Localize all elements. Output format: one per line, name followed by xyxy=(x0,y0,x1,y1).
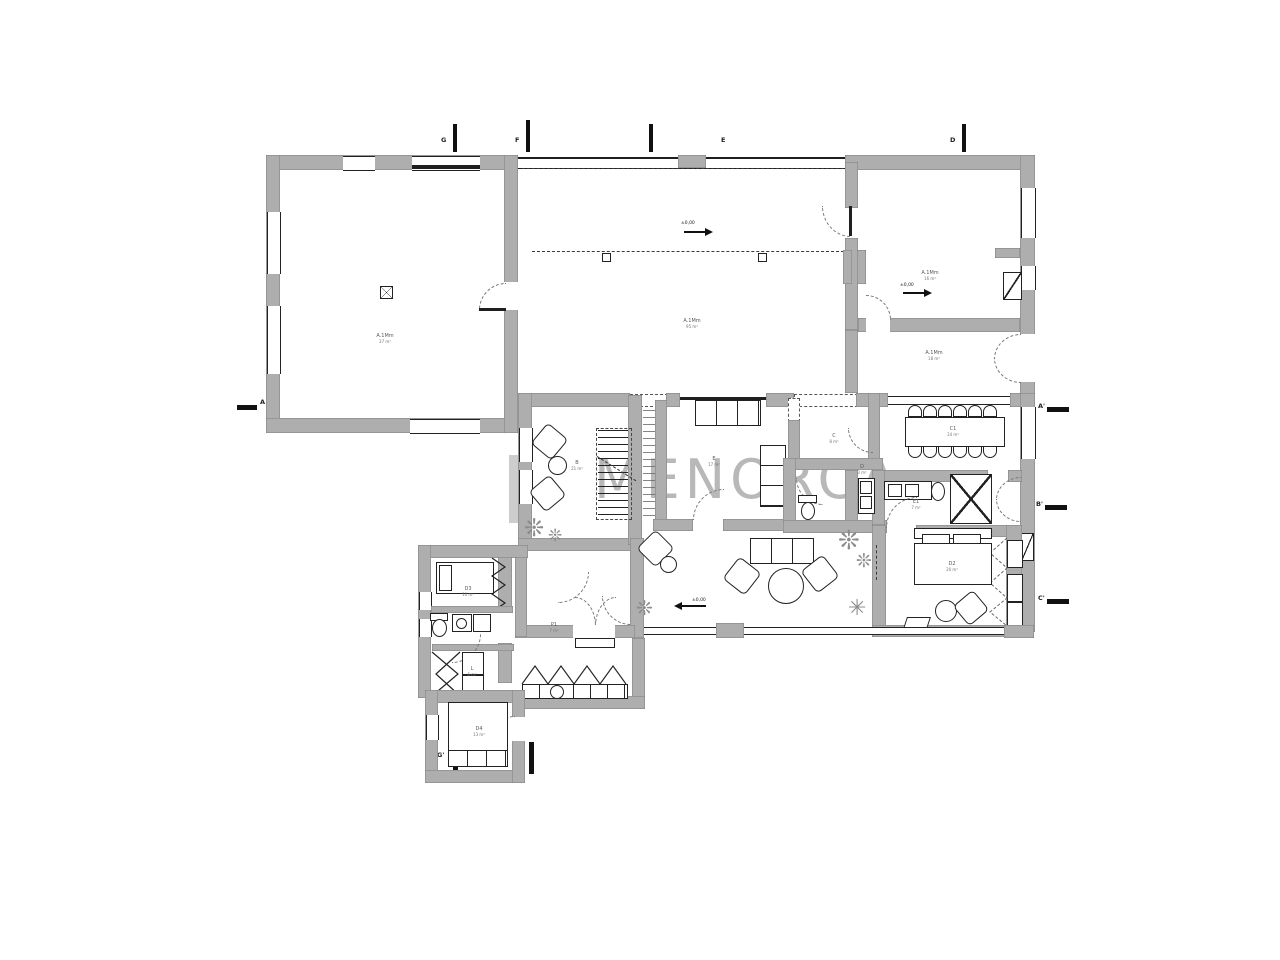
grid-label-g2: G' xyxy=(437,751,444,759)
closet-row-icon xyxy=(522,666,626,684)
room-label: A.1Mm95 m² xyxy=(683,318,700,330)
level-text: ±0,00 xyxy=(692,598,706,603)
chair-icon xyxy=(923,446,937,458)
armchair-icon xyxy=(528,474,566,512)
chair-icon xyxy=(938,446,952,458)
room-label: D310 m² xyxy=(462,586,474,598)
grid-tick xyxy=(526,120,530,152)
window xyxy=(519,428,533,462)
room-label: D3 m² xyxy=(857,464,866,476)
grid-label-e: E xyxy=(721,136,725,144)
sink-bowl-icon xyxy=(456,618,467,629)
chair-icon xyxy=(983,446,997,458)
wall xyxy=(872,525,886,632)
wall xyxy=(266,418,518,433)
wall xyxy=(845,470,858,527)
plant-icon: ❊ xyxy=(524,516,544,540)
entry-opening xyxy=(573,625,615,638)
hatch-symbol xyxy=(380,286,393,299)
side-table-icon xyxy=(935,600,957,622)
level-arrow-icon xyxy=(705,228,713,236)
wall xyxy=(666,393,680,407)
hob-icon xyxy=(888,484,902,497)
level-arrow-icon xyxy=(674,602,682,610)
window xyxy=(343,156,375,171)
wall-pier xyxy=(716,623,744,638)
room-label: E17 m² xyxy=(708,456,720,468)
window xyxy=(267,306,281,374)
chair-icon xyxy=(953,405,967,417)
wall xyxy=(653,519,693,531)
column xyxy=(758,253,767,262)
window xyxy=(267,212,281,274)
closet-folding-doors-icon xyxy=(990,538,1007,626)
wall xyxy=(425,770,525,783)
wall xyxy=(632,638,645,700)
door-arc xyxy=(558,572,589,603)
wall xyxy=(266,155,280,433)
grid-label-f: F xyxy=(515,136,519,144)
door-arc xyxy=(822,206,851,237)
plant-icon: ❊ xyxy=(548,528,562,545)
coffee-table-icon xyxy=(768,568,804,604)
bed-drawers xyxy=(448,750,508,767)
grid-label-d: D xyxy=(950,136,955,144)
window-wall xyxy=(644,627,1010,635)
floor-plan: MENORCA G F E D G' F' A A' B' C' A.1Mm37… xyxy=(0,0,1280,960)
chair-icon xyxy=(908,405,922,417)
sink-icon xyxy=(931,482,945,501)
wall-nib xyxy=(995,248,1020,258)
side-table-icon xyxy=(548,456,567,475)
level-arrow-icon xyxy=(924,289,932,297)
level-text: ±0,00 xyxy=(681,221,695,226)
closet-box xyxy=(1007,602,1023,626)
door-opening xyxy=(866,318,890,332)
grid-tick xyxy=(529,742,534,774)
stair-wall xyxy=(655,400,667,526)
room-label: A.1Mm16 m² xyxy=(921,270,938,282)
wall xyxy=(845,330,858,393)
room-label: C124 m² xyxy=(947,426,959,438)
wall xyxy=(515,557,527,637)
closet-box xyxy=(1007,574,1023,602)
section-bar xyxy=(1045,505,1067,510)
window xyxy=(519,470,533,504)
window xyxy=(410,419,480,434)
entry-step xyxy=(575,638,615,648)
section-label-a2: A' xyxy=(1038,402,1045,410)
door-arc xyxy=(996,477,1021,500)
door-arc xyxy=(479,283,506,310)
chair-icon xyxy=(908,446,922,458)
plant-icon: ❊ xyxy=(856,552,872,571)
window xyxy=(788,398,800,422)
basin-icon xyxy=(550,685,564,699)
wall xyxy=(845,155,1035,170)
level-line xyxy=(682,605,706,607)
wall-pier xyxy=(843,250,852,284)
wall xyxy=(845,162,858,208)
hob-icon xyxy=(905,484,919,497)
section-bar xyxy=(1047,407,1069,412)
room-label: D220 m² xyxy=(946,561,958,573)
opening-dashed xyxy=(876,545,877,580)
lintel-line xyxy=(412,165,480,169)
door-opening xyxy=(504,282,518,310)
section-label-c2: C' xyxy=(1038,594,1045,602)
level-line xyxy=(684,231,706,233)
sink-icon xyxy=(860,481,872,494)
chair-icon xyxy=(968,405,982,417)
wall-pier xyxy=(1004,625,1034,638)
window xyxy=(419,619,432,637)
wall xyxy=(518,393,630,407)
grid-label-g: G xyxy=(441,136,446,144)
chair-icon xyxy=(968,446,982,458)
armchair-icon xyxy=(530,422,568,460)
section-label-b2: B' xyxy=(1036,500,1043,508)
toilet-tank xyxy=(798,495,817,503)
window xyxy=(1021,188,1036,238)
door-arc xyxy=(866,295,891,320)
chair-icon xyxy=(923,405,937,417)
level-line xyxy=(903,292,925,294)
chair-icon xyxy=(953,446,967,458)
door-leaf xyxy=(479,308,506,311)
wall xyxy=(788,420,800,460)
sink-icon xyxy=(860,496,872,509)
side-table-icon xyxy=(660,556,677,573)
room-label: C8 m² xyxy=(829,433,838,445)
closet-icon xyxy=(1003,272,1022,300)
room-label: L6 m² xyxy=(467,666,476,678)
grid-tick xyxy=(962,124,966,152)
sofa-icon xyxy=(750,538,814,564)
wall xyxy=(783,458,883,470)
window xyxy=(1021,407,1036,459)
door-leaf xyxy=(849,206,852,236)
door-opening xyxy=(1020,334,1035,382)
window xyxy=(888,396,1010,405)
section-bar xyxy=(1047,599,1069,604)
stairs-dashed xyxy=(643,410,655,522)
chair-icon xyxy=(983,405,997,417)
closet-box xyxy=(1007,540,1023,568)
door-arc xyxy=(994,358,1021,383)
armchair-icon xyxy=(953,590,990,627)
column xyxy=(602,253,611,262)
wall-pier xyxy=(678,155,706,168)
room-label: B21 m² xyxy=(571,460,583,472)
pantry-icon xyxy=(950,474,992,524)
door-arc xyxy=(996,499,1021,522)
wall-pier xyxy=(857,250,866,284)
washbasin-icon xyxy=(473,614,491,632)
door-arc xyxy=(994,334,1021,359)
chair-icon xyxy=(938,405,952,417)
room-label: P17 m² xyxy=(549,622,558,634)
grid-tick xyxy=(649,124,653,152)
grid-tick xyxy=(453,124,457,152)
window xyxy=(794,394,858,407)
toilet-icon xyxy=(432,619,447,637)
room-label: A.1Mm37 m² xyxy=(376,333,393,345)
sofa-icon xyxy=(695,400,761,426)
toilet-icon xyxy=(801,502,815,520)
plant-icon: ❊ xyxy=(636,598,653,618)
pillow-icon xyxy=(439,565,452,591)
door-arc xyxy=(575,597,596,626)
window xyxy=(1021,266,1036,290)
roof-line xyxy=(532,251,844,252)
level-text: ±0,00 xyxy=(900,283,914,288)
section-bar xyxy=(237,405,257,410)
wall xyxy=(266,155,518,170)
wall xyxy=(431,606,513,613)
closet-doors-icon xyxy=(492,558,507,612)
section-label-a: A xyxy=(260,398,265,406)
room-label: D413 m² xyxy=(473,726,485,738)
closet-base xyxy=(522,684,628,699)
room-label: A.1Mm18 m² xyxy=(925,350,942,362)
star-plant-icon: ✳ xyxy=(848,598,866,620)
window xyxy=(426,715,439,740)
